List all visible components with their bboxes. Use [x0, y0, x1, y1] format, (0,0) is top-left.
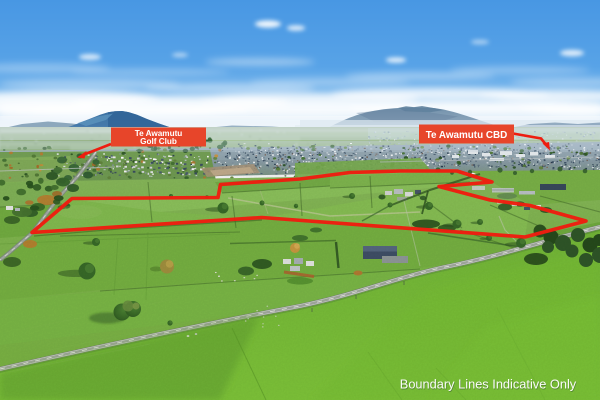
svg-text:Te Awamutu CBD: Te Awamutu CBD	[426, 130, 508, 141]
svg-text:Boundary Lines Indicative Only: Boundary Lines Indicative Only	[400, 377, 577, 392]
svg-text:Golf Club: Golf Club	[140, 137, 177, 146]
